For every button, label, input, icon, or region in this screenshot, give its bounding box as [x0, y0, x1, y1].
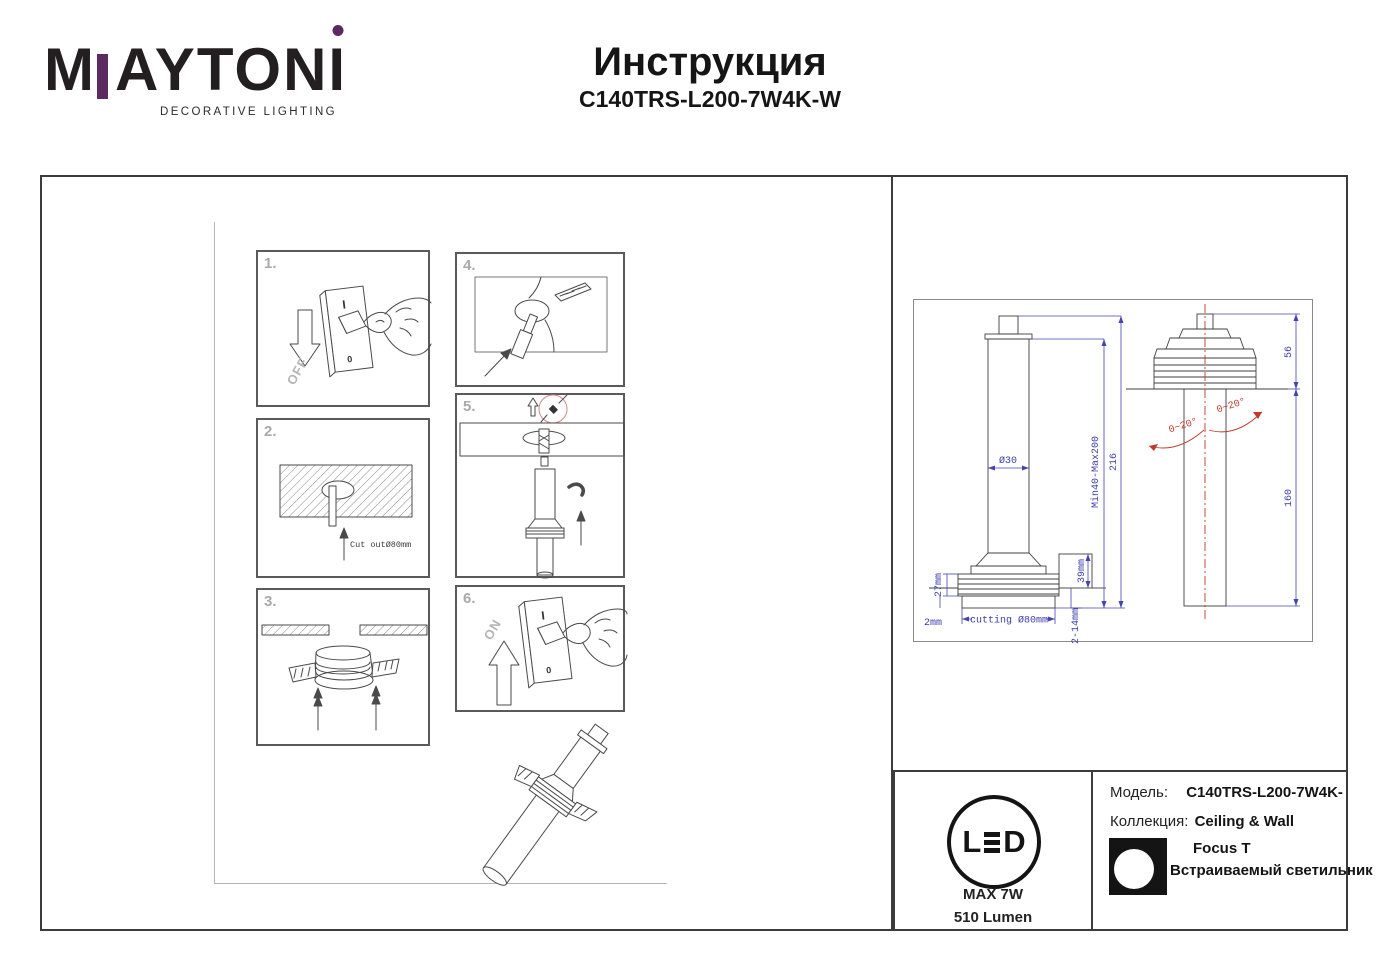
model-label: Модель: — [1110, 784, 1168, 801]
dim-39mm: 39mm — [1077, 559, 1088, 583]
maytoni-logo: MAYTONI — [44, 40, 347, 100]
wall-switch — [518, 597, 572, 688]
technical-drawing-panel: Ø30 Min40-Max200 216 39mm 27mm 2mm cutti… — [913, 299, 1313, 642]
wire-bottom — [545, 320, 554, 352]
led-letter-l: L — [962, 824, 981, 860]
led-spec-cell: L D MAX 7W 510 Lumen — [895, 772, 1091, 929]
step-1-box: 1. OFF I 0 — [256, 250, 430, 407]
up-arrow-icon — [577, 511, 585, 521]
dim-tube-diameter: Ø30 — [999, 455, 1017, 467]
page-title: Инструкция — [420, 40, 1000, 84]
model-info-cell: Модель: C140TRS-L200-7W4K- Коллекция: Ce… — [1093, 772, 1348, 929]
on-label: ON — [481, 616, 505, 642]
connector-detail — [549, 405, 558, 414]
led-logo-icon: L D — [947, 795, 1041, 889]
circle-mark — [1114, 849, 1154, 889]
lumen-label: 510 Lumen — [895, 909, 1091, 926]
small-up-arrow-icon — [528, 398, 538, 416]
up-arrow-icon — [340, 528, 348, 538]
logo-purple-bar — [97, 54, 108, 99]
cut-hole — [322, 481, 354, 499]
dim-cutting: cutting Ø80mm — [970, 615, 1048, 627]
assembled-fixture-drawing — [435, 712, 655, 912]
step-2-box: 2. Cut outØ80mm — [256, 418, 430, 578]
mounting-bracket — [539, 429, 549, 453]
step-3-illustration-insert-ring — [258, 590, 432, 748]
model-code-title: C140TRS-L200-7W4K-W — [420, 86, 1000, 113]
max-power-label: MAX 7W — [895, 886, 1091, 903]
step-4-illustration-wiring — [457, 254, 627, 389]
wall-switch — [319, 286, 373, 377]
step-3-box: 3. — [256, 588, 430, 746]
step-1-illustration-switch-off: OFF I 0 — [258, 252, 432, 409]
step-6-box: 6. ON I 0 — [455, 585, 625, 712]
collection-label: Коллекция: — [1110, 813, 1188, 830]
up-arrows — [314, 686, 380, 730]
dim-160: 160 — [1284, 489, 1295, 507]
angle-left-label: 0~20° — [1167, 416, 1199, 437]
step-2-illustration-cut-hole: Cut outØ80mm — [258, 420, 432, 580]
cut-out-label: Cut outØ80mm — [350, 540, 411, 550]
step-5-illustration-install-fixture — [457, 395, 627, 580]
logo-tagline: DECORATIVE LIGHTING — [160, 106, 330, 118]
collection-value: Ceiling & Wall — [1195, 813, 1294, 830]
hand-sketch — [563, 609, 627, 666]
hand-sketch — [364, 298, 431, 355]
step-4-box: 4. — [455, 252, 625, 387]
dim-2-14mm: 2-14mm — [1071, 608, 1082, 644]
led-letter-e-bars — [984, 832, 1000, 853]
ceiling-strip-left — [262, 625, 329, 635]
step-6-illustration-switch-on: ON I 0 — [457, 587, 627, 714]
collection-icon — [1109, 838, 1167, 895]
logo-letter-m: M — [44, 40, 96, 100]
step-5-box: 5. — [455, 393, 625, 578]
stem — [541, 457, 548, 466]
dim-27mm: 27mm — [934, 573, 945, 597]
led-letter-d: D — [1003, 824, 1025, 860]
saw-tool — [329, 486, 336, 526]
dim-56: 56 — [1284, 346, 1295, 358]
tilt-angle-annotations: 0~20° 0~20° — [1149, 396, 1262, 451]
allen-key — [569, 484, 583, 495]
dim-height-range: Min40-Max200 — [1090, 436, 1102, 508]
angle-right-label: 0~20° — [1215, 396, 1247, 417]
series-name: Focus T — [1193, 840, 1251, 857]
down-arrow-icon — [290, 310, 320, 366]
tilt-view-drawing — [1126, 314, 1288, 606]
header-titles: Инструкция C140TRS-L200-7W4K-W — [420, 40, 1000, 113]
dim-2mm: 2mm — [924, 618, 942, 629]
mounting-ring — [289, 646, 399, 689]
side-view-dimensions: Ø30 Min40-Max200 216 39mm 27mm 2mm cutti… — [924, 316, 1125, 644]
ceiling-strip-right — [360, 625, 427, 635]
product-type: Встраиваемый светильник — [1170, 862, 1373, 879]
wire-top — [529, 277, 541, 298]
logo-letters-ayton: AYTON — [115, 40, 328, 100]
product-info-strip: L D MAX 7W 510 Lumen Модель: C140TRS-L20… — [893, 770, 1348, 931]
technical-drawings: Ø30 Min40-Max200 216 39mm 27mm 2mm cutti… — [914, 300, 1312, 641]
inner-margin-line-vertical — [214, 222, 215, 883]
model-value: C140TRS-L200-7W4K- — [1186, 784, 1343, 801]
spot-fixture — [526, 469, 564, 578]
dim-height-total: 216 — [1109, 453, 1120, 471]
up-arrow-icon — [489, 641, 519, 705]
logo-letter-i-dotted: I — [328, 40, 347, 100]
